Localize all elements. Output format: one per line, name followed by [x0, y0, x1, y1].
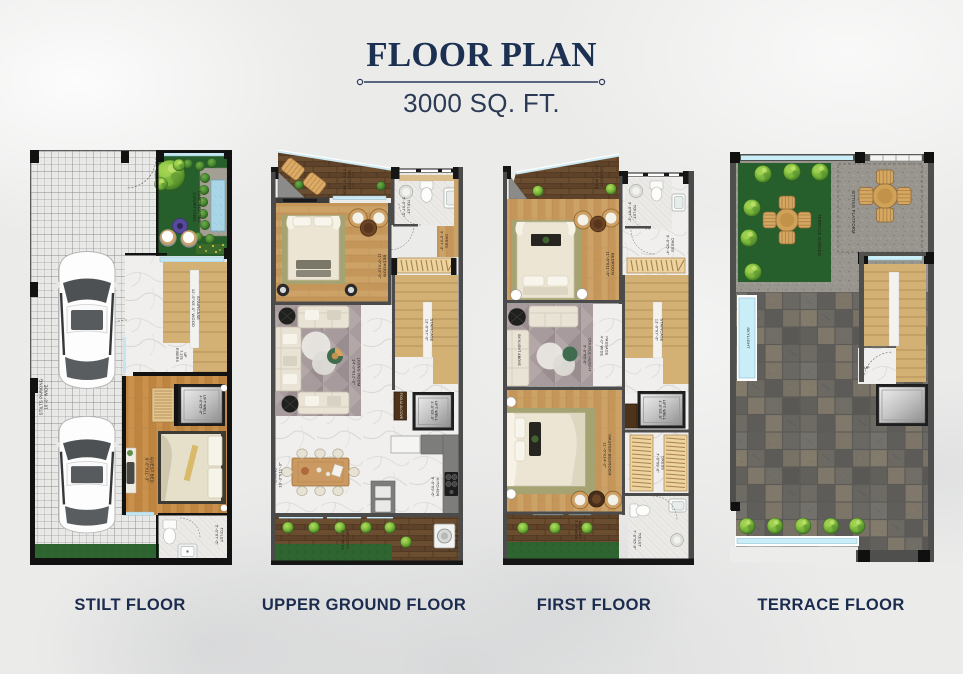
svg-text:LIFT WELL: LIFT WELL	[434, 401, 438, 421]
svg-text:9'-6"X5'-4": 9'-6"X5'-4"	[666, 235, 670, 255]
svg-text:POOJA ALCOVE: POOJA ALCOVE	[399, 393, 403, 420]
svg-text:DRESS: DRESS	[670, 238, 674, 252]
svg-text:TOILET: TOILET	[637, 533, 641, 548]
svg-text:2'-5"X3'-9" WIDE: 2'-5"X3'-9" WIDE	[343, 164, 347, 196]
svg-text:STAIRCASE: STAIRCASE	[659, 318, 663, 341]
svg-text:SKYLIGHT ABOVE: SKYLIGHT ABOVE	[517, 334, 521, 366]
svg-text:BALCONY: BALCONY	[345, 530, 349, 550]
svg-text:5'-3" WIDE: 5'-3" WIDE	[454, 530, 458, 550]
svg-text:11'-6"X14'-0": 11'-6"X14'-0"	[603, 442, 608, 468]
svg-text:BALCONY: BALCONY	[599, 167, 603, 187]
svg-text:TERRACE GARDEN: TERRACE GARDEN	[817, 214, 822, 256]
svg-text:5'-0"X7'-5": 5'-0"X7'-5"	[215, 525, 220, 546]
svg-text:BALCONY: BALCONY	[578, 521, 582, 540]
svg-text:4'-0" WIDE: 4'-0" WIDE	[600, 336, 604, 357]
svg-text:12'-9"X9'-0" WOOD: 12'-9"X9'-0" WOOD	[191, 289, 196, 327]
svg-text:RISERS: RISERS	[175, 348, 179, 362]
svg-text:SKYLIGHT: SKYLIGHT	[746, 327, 751, 349]
svg-text:10'-3"X11'-3": 10'-3"X11'-3"	[277, 462, 282, 488]
svg-text:9'-6"X7'-3": 9'-6"X7'-3"	[628, 202, 632, 222]
svg-text:11'-6"X13'-0": 11'-6"X13'-0"	[378, 253, 383, 279]
svg-text:LIFT WELL: LIFT WELL	[203, 395, 207, 415]
svg-text:9'-6"X9'-6": 9'-6"X9'-6"	[583, 345, 587, 365]
svg-text:11'-6"X11'-6": 11'-6"X11'-6"	[606, 251, 611, 276]
svg-text:4'-0"X5'-0": 4'-0"X5'-0"	[198, 396, 202, 415]
svg-text:9'-6"X9'-6": 9'-6"X9'-6"	[431, 477, 436, 498]
svg-text:BALCONY: BALCONY	[347, 170, 351, 190]
svg-text:24'-11" WIDE: 24'-11" WIDE	[595, 165, 599, 190]
svg-text:12'-9"X7'-9": 12'-9"X7'-9"	[655, 319, 659, 342]
svg-text:5'-0" WIDE: 5'-0" WIDE	[574, 520, 578, 540]
svg-text:PASSAGE: PASSAGE	[604, 336, 608, 356]
svg-text:4'-0"X5'-0": 4'-0"X5'-0"	[658, 401, 662, 420]
svg-text:DRESS: DRESS	[660, 456, 664, 470]
svg-text:7'-0"X9'-6": 7'-0"X9'-6"	[656, 453, 660, 473]
svg-text:9'-6"X7'-3": 9'-6"X7'-3"	[440, 231, 444, 251]
svg-text:7'-6"X5'-0": 7'-6"X5'-0"	[633, 530, 637, 550]
svg-text:3'-0" WIDE: 3'-0" WIDE	[341, 530, 345, 551]
svg-text:UP: UP	[864, 365, 870, 370]
svg-text:16'-0" WIDE: 16'-0" WIDE	[44, 385, 49, 410]
svg-text:5'-6"X7'-5": 5'-6"X7'-5"	[402, 197, 406, 217]
svg-text:12'-9"X7'-9": 12'-9"X7'-9"	[425, 319, 429, 342]
svg-text:4'-0"X5'-0": 4'-0"X5'-0"	[430, 402, 434, 421]
svg-text:SITTING PLATFORM: SITTING PLATFORM	[851, 190, 856, 234]
svg-text:STAIRCASE: STAIRCASE	[429, 318, 433, 341]
svg-text:TOILET: TOILET	[632, 205, 636, 220]
svg-text:DOUBLE HEIGHT: DOUBLE HEIGHT	[587, 338, 591, 372]
svg-text:DRESS: DRESS	[444, 234, 448, 248]
svg-text:LIFT WELL: LIFT WELL	[662, 400, 666, 420]
svg-text:9'-6"X11'-3": 9'-6"X11'-3"	[145, 458, 150, 482]
svg-text:COURTYARD: COURTYARD	[192, 192, 197, 221]
svg-text:TOILET: TOILET	[406, 200, 410, 215]
svg-text:14'-0"X12'-0": 14'-0"X12'-0"	[352, 359, 357, 385]
